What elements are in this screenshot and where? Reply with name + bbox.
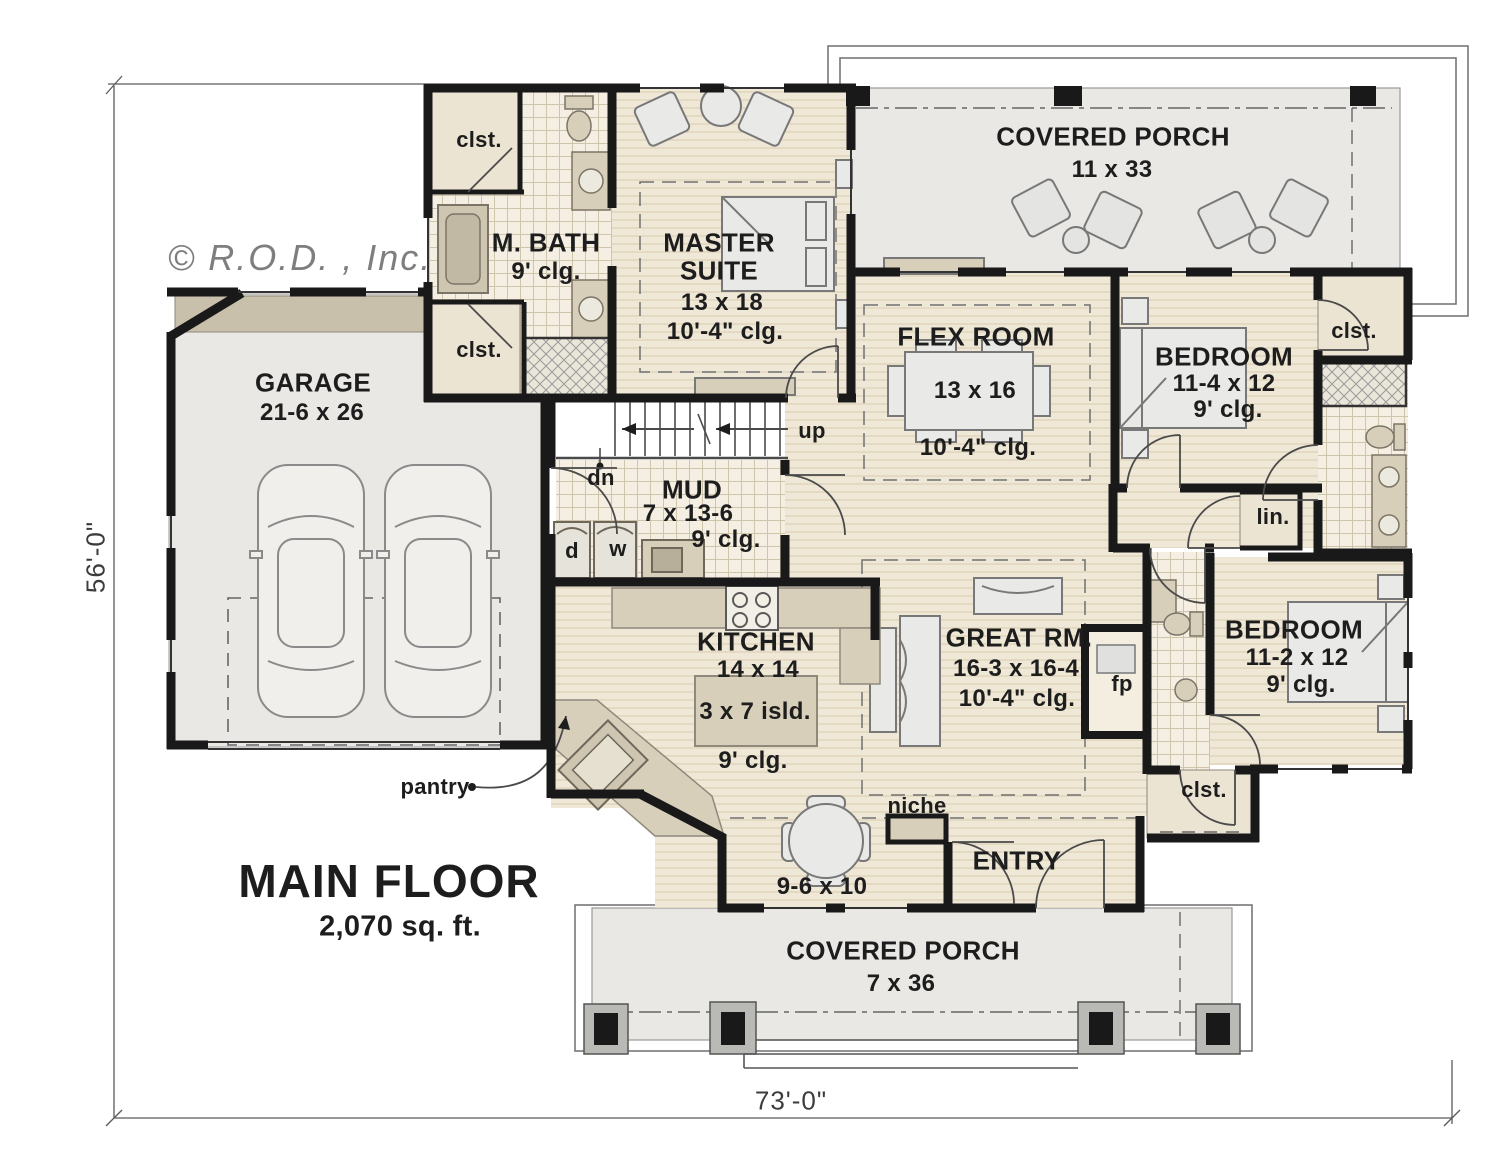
floor-plan-page: © R.O.D. , Inc. COVERED PORCH 11 x 33 cl… (0, 0, 1500, 1159)
stairs (556, 400, 788, 470)
fireplace-icon (1085, 628, 1147, 735)
floor-plan-drawing (0, 0, 1500, 1159)
niche-box (888, 816, 946, 842)
front-steps (744, 1040, 1078, 1068)
flex-room-table-icon (888, 340, 1050, 442)
